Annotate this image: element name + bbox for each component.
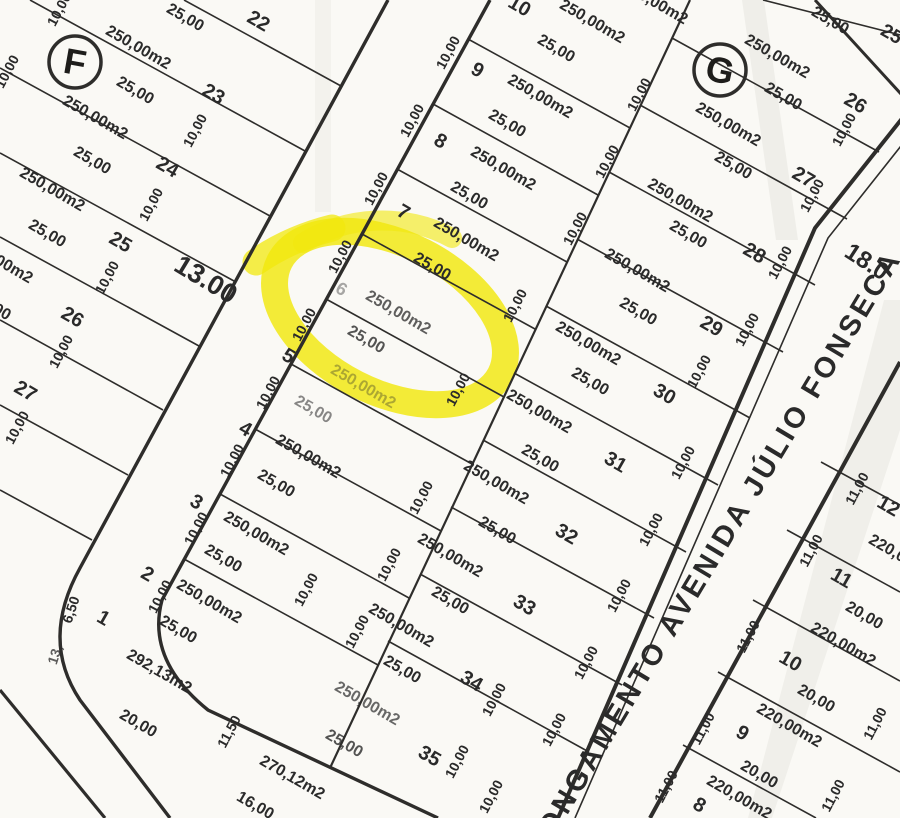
cadastral-map: F G 25,0010,0022250,00m225,002310,00250,… [0,0,900,818]
plat-map-canvas: F G 25,0010,0022250,00m225,002310,00250,… [0,0,900,818]
